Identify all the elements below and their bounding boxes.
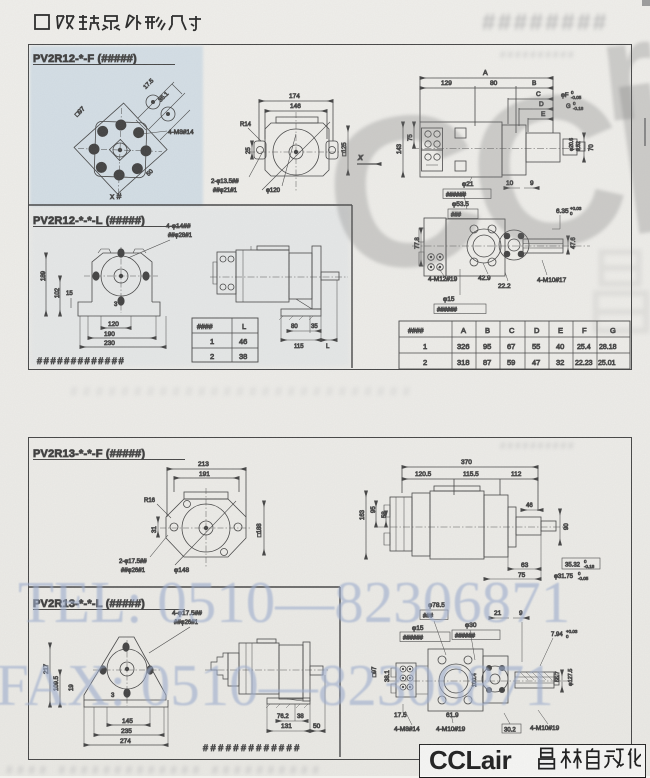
svg-text:115: 115 bbox=[294, 344, 304, 350]
svg-text:38: 38 bbox=[239, 352, 247, 361]
svg-text:□188: □188 bbox=[257, 523, 263, 537]
svg-text:#############: ############# bbox=[203, 743, 302, 753]
svg-text:230: 230 bbox=[104, 340, 115, 347]
svg-text:17.5: 17.5 bbox=[143, 78, 156, 91]
svg-text:R16: R16 bbox=[144, 498, 156, 504]
svg-text:50: 50 bbox=[146, 168, 155, 177]
svg-text:115.5: 115.5 bbox=[463, 471, 479, 478]
svg-text:PV2R13-*-*-F (#####): PV2R13-*-*-F (#####) bbox=[33, 448, 145, 460]
svg-text:####: #### bbox=[197, 324, 213, 331]
svg-text:55: 55 bbox=[532, 342, 540, 351]
svg-text:F: F bbox=[582, 326, 587, 335]
svg-text:80: 80 bbox=[291, 324, 298, 330]
svg-text:67: 67 bbox=[507, 342, 515, 351]
svg-text:4-φ14##: 4-φ14## bbox=[166, 223, 191, 230]
svg-text:120: 120 bbox=[108, 321, 119, 328]
svg-text:4-M8#14: 4-M8#14 bbox=[168, 129, 194, 136]
svg-text:189: 189 bbox=[41, 270, 47, 281]
svg-text:30.2: 30.2 bbox=[504, 728, 516, 734]
svg-text:35: 35 bbox=[311, 324, 318, 330]
svg-text:PV2R12-*-*-L (#####): PV2R12-*-*-L (#####) bbox=[33, 215, 145, 227]
svg-text:58: 58 bbox=[382, 511, 388, 518]
svg-text:190: 190 bbox=[104, 331, 115, 338]
svg-text:50: 50 bbox=[313, 723, 321, 730]
svg-text:4-M10#19: 4-M10#19 bbox=[530, 725, 560, 732]
svg-text:25.4: 25.4 bbox=[577, 344, 591, 351]
svg-text:2: 2 bbox=[423, 358, 427, 367]
svg-text:L: L bbox=[242, 322, 246, 331]
svg-text:32: 32 bbox=[556, 358, 564, 367]
svg-text:87: 87 bbox=[483, 358, 491, 367]
svg-text:3: 3 bbox=[114, 302, 118, 308]
svg-text:40: 40 bbox=[556, 342, 564, 351]
svg-text:-0.05: -0.05 bbox=[578, 576, 589, 581]
svg-text:φ120: φ120 bbox=[266, 188, 281, 194]
svg-text:95: 95 bbox=[371, 506, 377, 513]
svg-text:370: 370 bbox=[461, 459, 472, 466]
svg-text:2-φ17.5##: 2-φ17.5## bbox=[119, 559, 147, 565]
svg-text:C: C bbox=[509, 326, 515, 335]
svg-text:120.5: 120.5 bbox=[415, 471, 432, 478]
svg-text:R14: R14 bbox=[240, 122, 252, 128]
svg-text:95: 95 bbox=[483, 342, 491, 351]
svg-text:2-φ13.5##: 2-φ13.5## bbox=[211, 179, 239, 185]
svg-text:1: 1 bbox=[423, 342, 427, 351]
svg-text:B: B bbox=[485, 326, 490, 335]
svg-text:4-M10#19: 4-M10#19 bbox=[436, 726, 466, 733]
svg-text:2: 2 bbox=[210, 352, 214, 361]
svg-text:E: E bbox=[558, 326, 563, 335]
svg-text:174: 174 bbox=[289, 93, 300, 100]
svg-text:131: 131 bbox=[281, 723, 292, 730]
svg-text:25.01: 25.01 bbox=[598, 360, 616, 367]
svg-text:##φ21#1: ##φ21#1 bbox=[213, 188, 238, 194]
svg-text:####: #### bbox=[408, 328, 424, 335]
svg-text:□97: □97 bbox=[74, 105, 87, 118]
svg-text:x #: x # bbox=[110, 191, 122, 201]
svg-text:146: 146 bbox=[290, 103, 301, 110]
svg-text:191: 191 bbox=[199, 471, 210, 478]
svg-text:-0.18: -0.18 bbox=[584, 564, 595, 569]
svg-text:47: 47 bbox=[532, 358, 540, 367]
svg-text:##φ28#1: ##φ28#1 bbox=[168, 233, 193, 239]
svg-text:28.18: 28.18 bbox=[599, 344, 617, 351]
svg-text:213: 213 bbox=[198, 461, 209, 468]
svg-text:#############: ############# bbox=[37, 356, 125, 366]
svg-text:22.23: 22.23 bbox=[575, 360, 593, 367]
svg-text:59: 59 bbox=[507, 358, 515, 367]
svg-text:112: 112 bbox=[511, 471, 522, 478]
svg-text:235: 235 bbox=[121, 728, 132, 735]
svg-text:D: D bbox=[534, 326, 540, 335]
svg-text:15: 15 bbox=[66, 291, 73, 297]
svg-text:1: 1 bbox=[210, 337, 214, 346]
svg-text:326: 326 bbox=[457, 342, 470, 351]
svg-text:318: 318 bbox=[457, 358, 470, 367]
svg-text:25: 25 bbox=[246, 147, 252, 154]
svg-text:102: 102 bbox=[55, 287, 61, 298]
svg-text:31: 31 bbox=[152, 526, 158, 533]
svg-text:163: 163 bbox=[360, 509, 366, 520]
svg-text:L: L bbox=[326, 344, 330, 350]
svg-text:274: 274 bbox=[120, 738, 131, 745]
svg-text:46: 46 bbox=[239, 337, 247, 346]
svg-text:55.7: 55.7 bbox=[555, 671, 561, 682]
svg-text:46: 46 bbox=[526, 503, 533, 509]
svg-text:A: A bbox=[461, 326, 466, 335]
svg-text:4-M8#14: 4-M8#14 bbox=[394, 726, 420, 733]
svg-text:PV2R12-*-F (#####): PV2R12-*-F (#####) bbox=[33, 53, 137, 65]
svg-text:90: 90 bbox=[564, 523, 570, 530]
svg-text:φ127.5: φ127.5 bbox=[568, 669, 574, 686]
